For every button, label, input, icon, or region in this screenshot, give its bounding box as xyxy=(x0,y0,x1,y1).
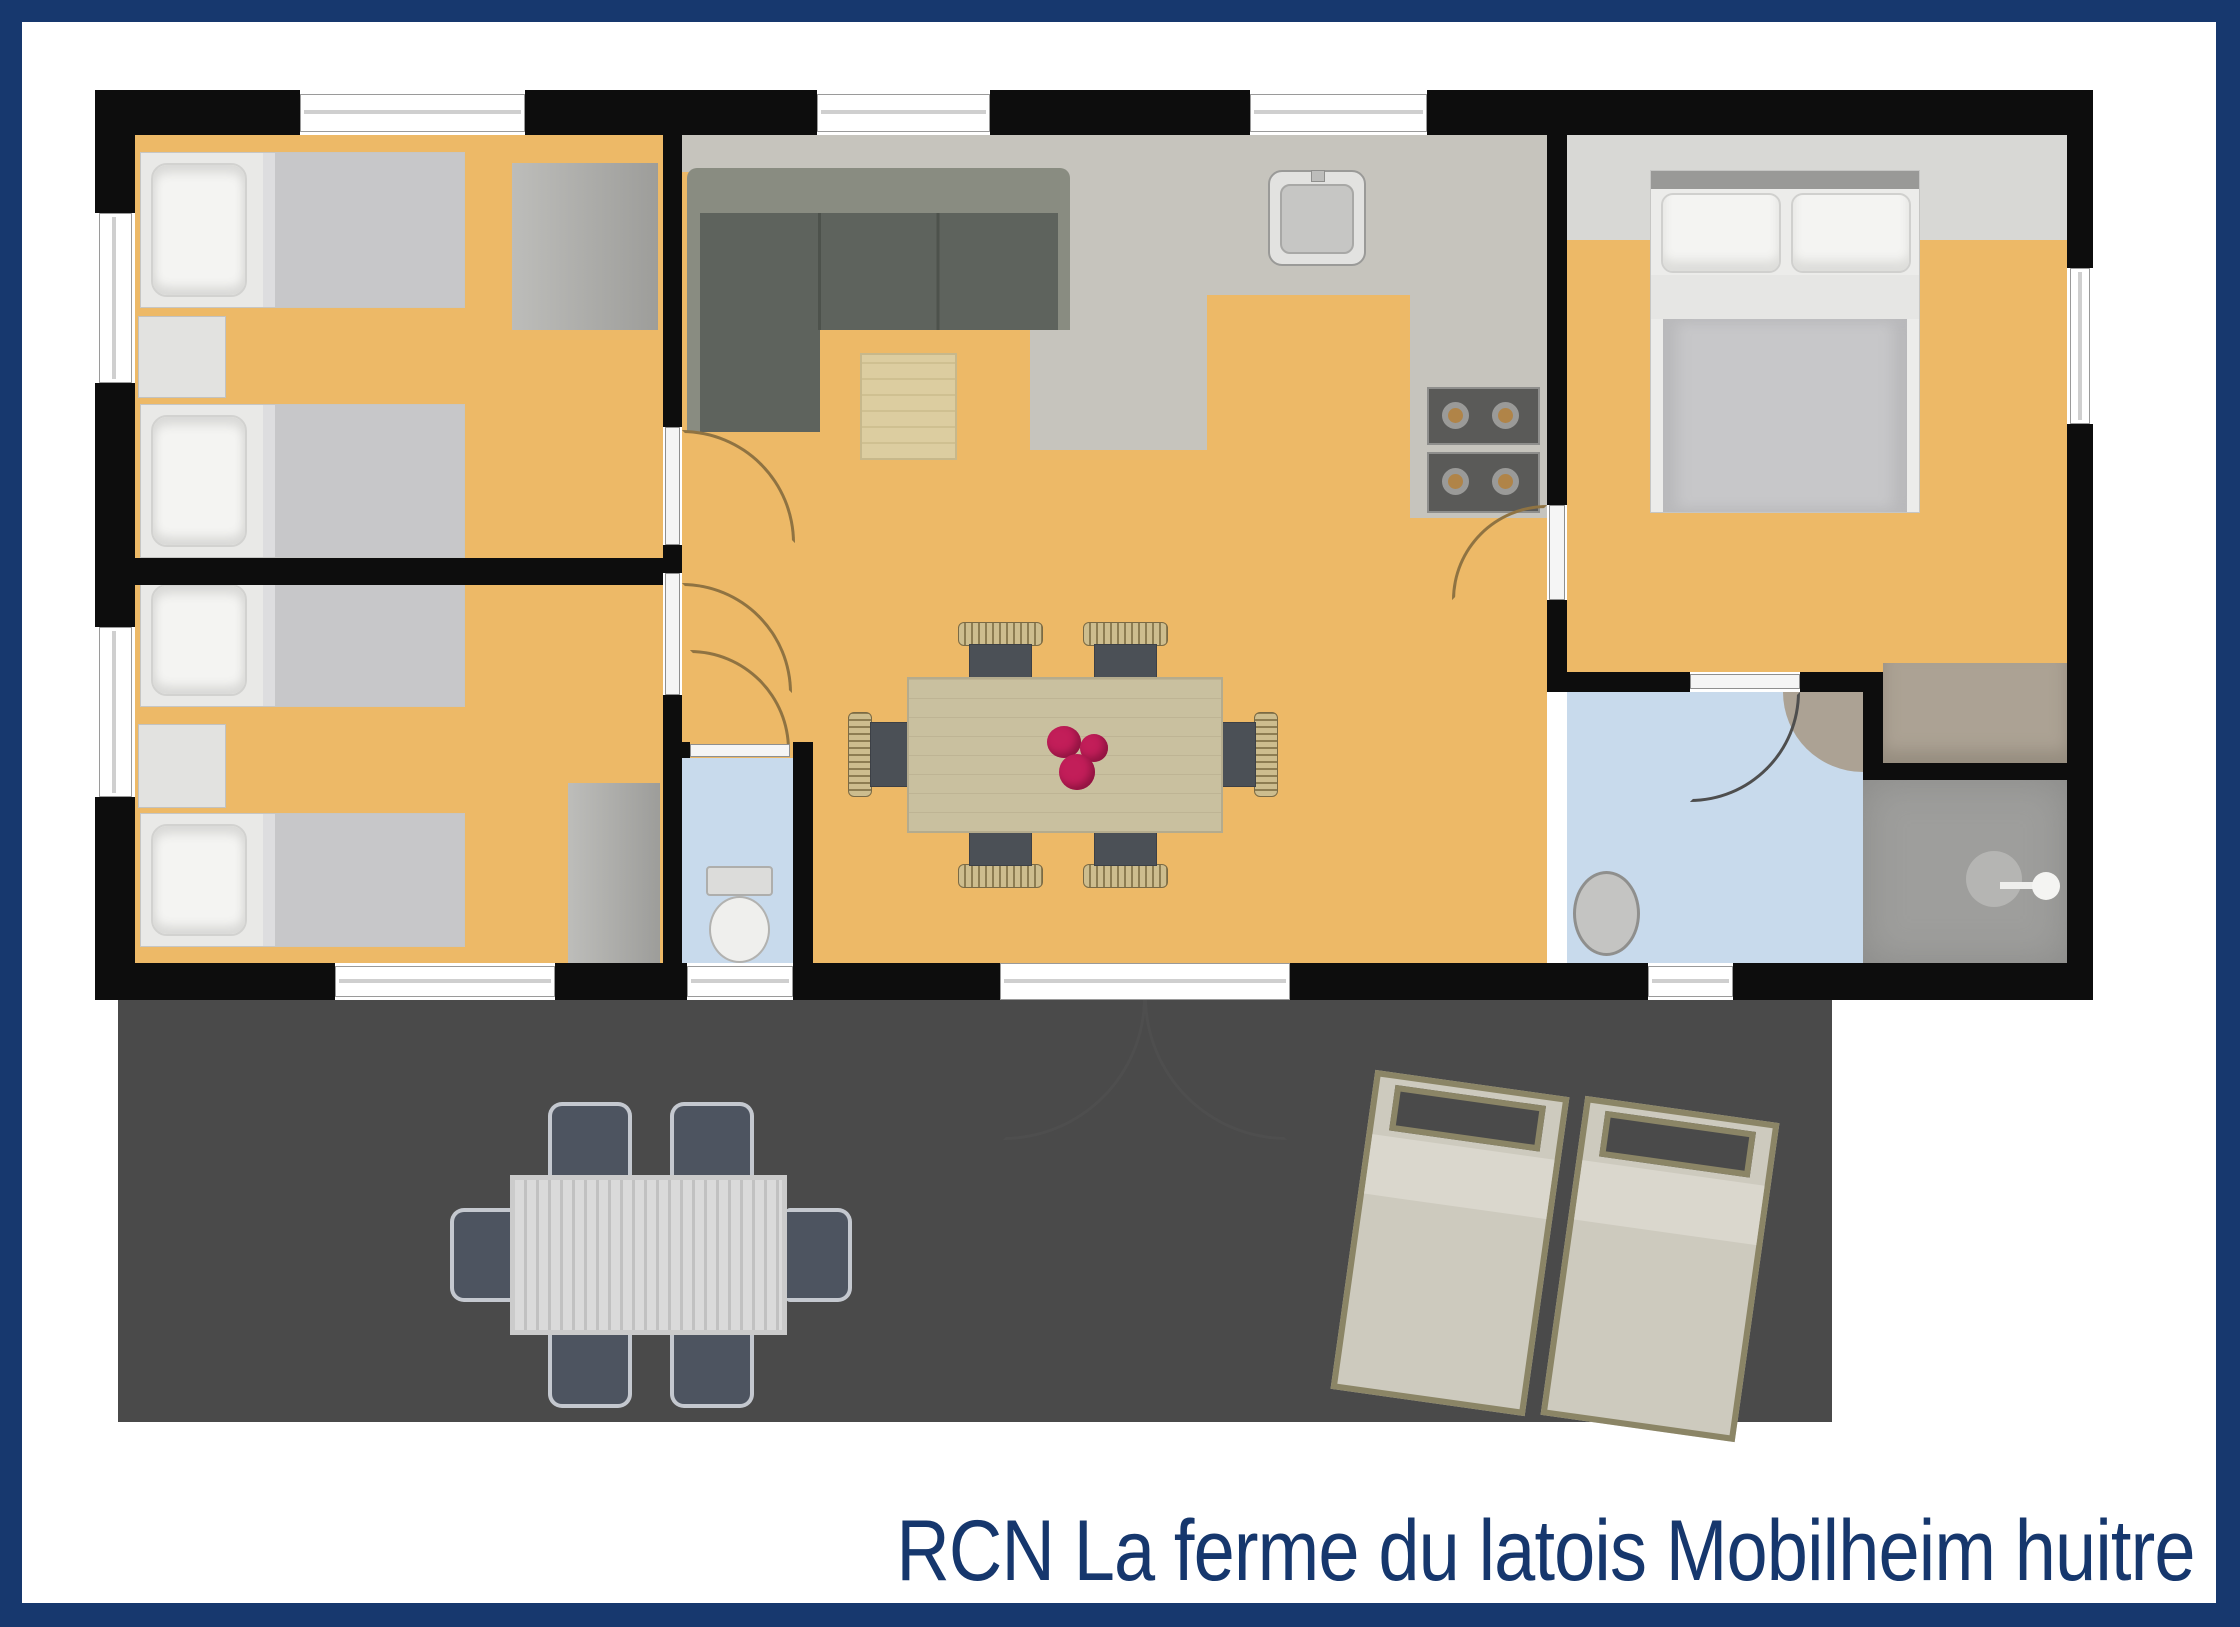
coffee-table xyxy=(860,353,957,460)
shower-floor xyxy=(1863,780,2067,963)
sheet xyxy=(1651,275,1919,319)
headboard xyxy=(1651,171,1919,189)
single-bed-3 xyxy=(140,573,465,707)
dining-chair-back xyxy=(958,864,1043,888)
window xyxy=(99,213,132,383)
wardrobe-bedroom1 xyxy=(512,163,658,330)
single-bed-4 xyxy=(140,813,465,947)
kitchen-sink xyxy=(1268,170,1366,266)
window xyxy=(817,94,990,132)
outdoor-chair xyxy=(548,1328,632,1408)
sink-basin xyxy=(1280,184,1354,254)
wall xyxy=(990,90,1250,135)
window xyxy=(99,627,132,797)
wall xyxy=(663,695,682,963)
master-wardrobe xyxy=(1883,663,2067,763)
dining-chair-back xyxy=(1083,622,1168,646)
frame-border-bottom xyxy=(0,1603,2240,1627)
door-leaf xyxy=(665,427,680,545)
single-bed-2 xyxy=(140,404,465,558)
wall xyxy=(1547,135,1567,505)
window xyxy=(2070,268,2090,424)
wall xyxy=(555,963,687,1000)
blanket xyxy=(263,153,464,307)
faucet xyxy=(1311,170,1325,182)
burner xyxy=(1492,468,1519,495)
double-bed xyxy=(1650,170,1920,513)
entrance-sliding-door xyxy=(1000,963,1290,1000)
caption: RCN La ferme du latois Mobilheim huitre xyxy=(897,1502,2195,1601)
outdoor-chair xyxy=(670,1102,754,1182)
door-leaf xyxy=(690,744,790,757)
wall xyxy=(1547,672,1690,692)
pillow xyxy=(151,584,247,696)
wall xyxy=(1290,963,1648,1000)
washbasin xyxy=(1573,871,1640,956)
flower-centerpiece xyxy=(1059,754,1095,790)
wall xyxy=(1863,763,2067,780)
sofa-chaise xyxy=(687,330,820,432)
nightstand-bedroom2 xyxy=(138,724,226,808)
frame-border-left xyxy=(0,0,22,1627)
dining-chair-back xyxy=(1083,864,1168,888)
dining-chair-back xyxy=(958,622,1043,646)
frame-border-top xyxy=(0,0,2240,22)
blanket xyxy=(263,814,464,946)
blanket xyxy=(263,405,464,557)
toilet-bowl xyxy=(709,896,770,963)
burner xyxy=(1442,402,1469,429)
pillow xyxy=(151,824,247,936)
door-leaf xyxy=(665,573,680,695)
wall xyxy=(663,545,682,573)
wall xyxy=(2067,424,2093,1000)
burner xyxy=(1442,468,1469,495)
wall xyxy=(95,383,135,627)
wall xyxy=(1733,963,2093,1000)
wall xyxy=(793,963,1000,1000)
pillow xyxy=(151,163,247,297)
burner xyxy=(1492,402,1519,429)
wall xyxy=(1800,672,1883,692)
window xyxy=(335,966,555,997)
nightstand-bedroom1 xyxy=(138,316,226,398)
dining-chair-back xyxy=(848,712,872,797)
window xyxy=(1250,94,1427,132)
toilet-tank xyxy=(706,866,773,896)
wall xyxy=(525,90,817,135)
outdoor-chair xyxy=(450,1208,516,1302)
pillow xyxy=(1661,193,1781,273)
window xyxy=(300,94,525,132)
dining-chair-back xyxy=(1254,712,1278,797)
wall xyxy=(663,135,682,427)
wardrobe-bedroom2 xyxy=(568,783,660,963)
outdoor-chair xyxy=(670,1328,754,1408)
door-leaf xyxy=(1690,674,1800,689)
kitchen-floor-counter xyxy=(1207,135,1547,295)
floor-plan-canvas: RCN La ferme du latois Mobilheim huitre xyxy=(0,0,2240,1627)
blanket xyxy=(263,574,464,706)
frame-border-right xyxy=(2216,0,2240,1627)
pillow xyxy=(151,415,247,547)
single-bed-1 xyxy=(140,152,465,308)
wall xyxy=(682,742,690,758)
wall xyxy=(95,963,335,1000)
shower-head-icon xyxy=(2032,872,2060,900)
wall xyxy=(2067,90,2093,268)
wall xyxy=(135,558,663,585)
outdoor-chair xyxy=(548,1102,632,1182)
blanket xyxy=(1663,319,1907,512)
outdoor-table xyxy=(510,1175,787,1335)
window xyxy=(1648,966,1733,997)
pillow xyxy=(1791,193,1911,273)
wall xyxy=(1427,90,2093,135)
shower-drain xyxy=(1966,851,2022,907)
wall xyxy=(95,90,135,213)
wall xyxy=(793,742,813,963)
window xyxy=(687,966,793,997)
outdoor-chair xyxy=(786,1208,852,1302)
sofa-seats xyxy=(700,213,1058,330)
door-leaf xyxy=(1549,505,1565,600)
